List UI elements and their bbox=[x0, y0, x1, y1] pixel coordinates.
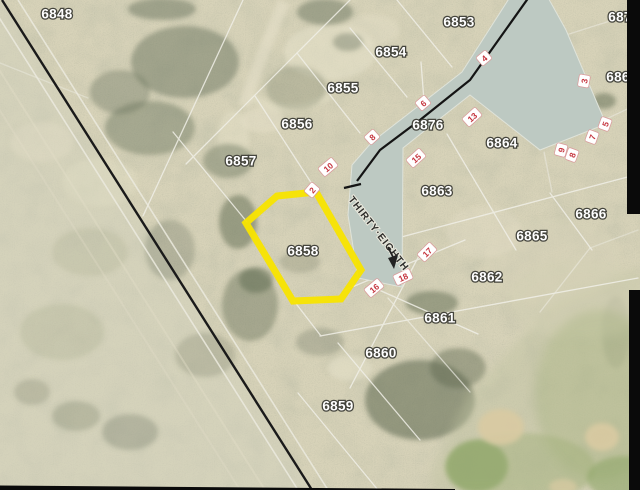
edge-parcel-label-686: 686 bbox=[606, 70, 630, 85]
parcel-label-6853: 6853 bbox=[443, 15, 474, 30]
parcel-label-6864: 6864 bbox=[486, 136, 517, 151]
parcel-label-6863: 6863 bbox=[421, 184, 452, 199]
parcel-label-6860: 6860 bbox=[365, 346, 396, 361]
road-marker-3: 3 bbox=[577, 74, 590, 88]
parcel-label-6856: 6856 bbox=[281, 117, 312, 132]
aerial-parcel-map[interactable]: 687686 684868536854685568566857687668646… bbox=[0, 0, 640, 490]
parcel-label-6855: 6855 bbox=[327, 81, 358, 96]
parcel-label-6859: 6859 bbox=[322, 399, 353, 414]
parcel-label-6866: 6866 bbox=[575, 207, 606, 222]
parcel-label-6854: 6854 bbox=[375, 45, 406, 60]
sand-bunker bbox=[478, 409, 524, 445]
parcel-label-6857: 6857 bbox=[225, 154, 256, 169]
parcel-label-6861: 6861 bbox=[424, 311, 455, 326]
parcel-label-6848: 6848 bbox=[41, 7, 72, 22]
map-viewport[interactable]: 687686 684868536854685568566857687668646… bbox=[0, 0, 640, 490]
parcel-label-6862: 6862 bbox=[471, 270, 502, 285]
parcel-label-6876: 6876 bbox=[412, 118, 443, 133]
parcel-label-6865: 6865 bbox=[516, 229, 547, 244]
sand-bunker bbox=[585, 423, 619, 451]
parcel-label-6858: 6858 bbox=[287, 244, 318, 259]
